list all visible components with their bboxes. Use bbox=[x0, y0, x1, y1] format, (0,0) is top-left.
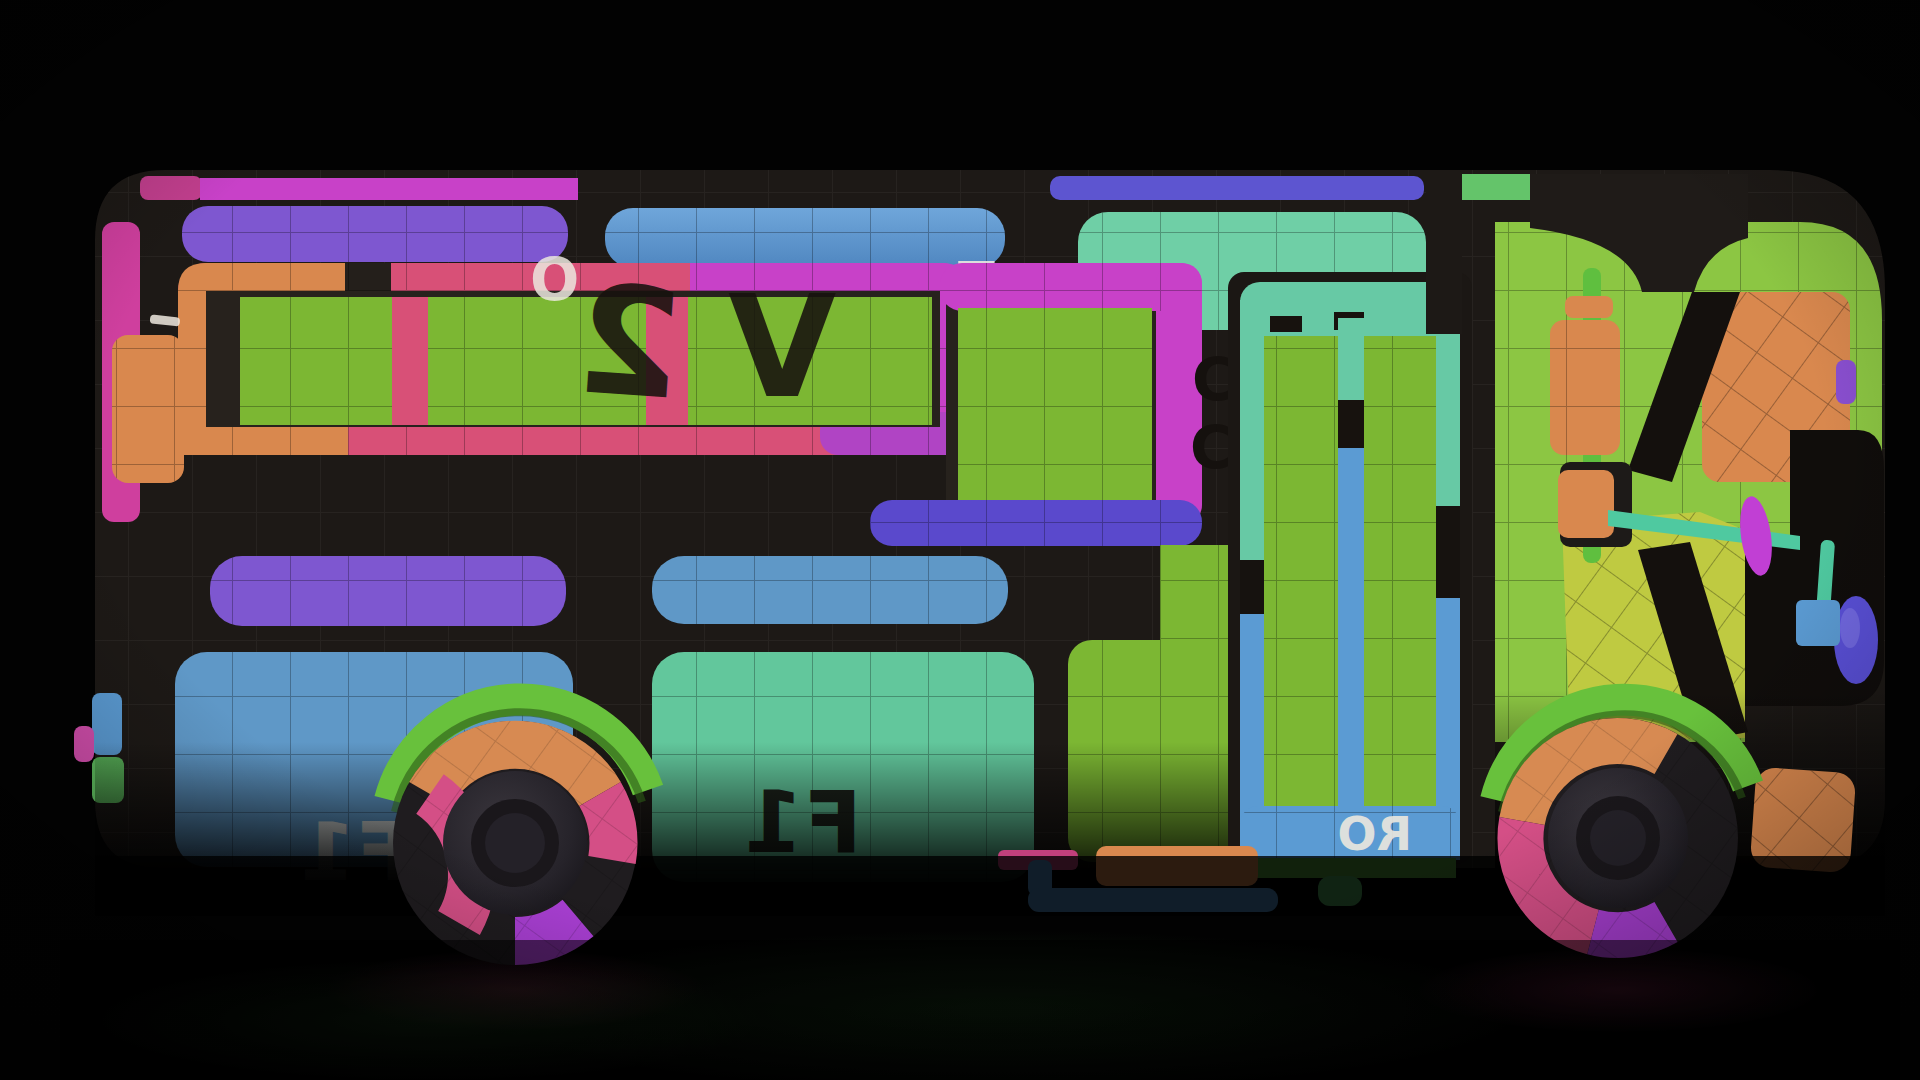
vignette bbox=[0, 0, 1920, 1080]
bus-render: 2 V O T F1 F1 C C bbox=[0, 0, 1920, 1080]
render-stage: 2 V O T F1 F1 C C bbox=[0, 0, 1920, 1080]
